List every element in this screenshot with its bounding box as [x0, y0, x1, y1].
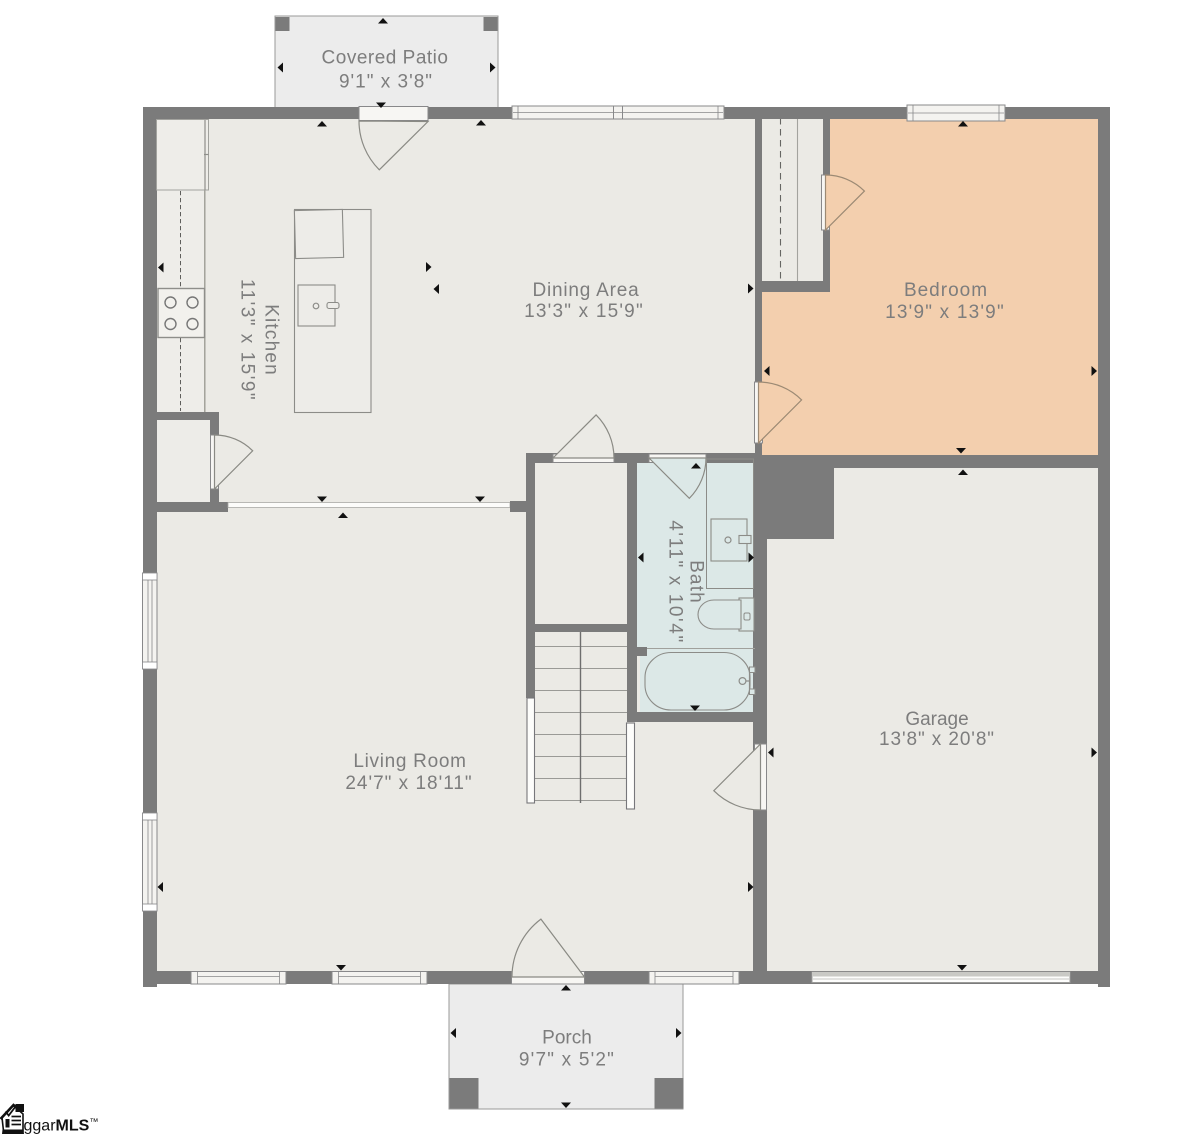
svg-text:Bath: Bath: [686, 560, 707, 604]
svg-text:13'8" x 20'8": 13'8" x 20'8": [879, 729, 995, 750]
svg-text:Bedroom: Bedroom: [904, 280, 988, 301]
svg-text:4'11" x 10'4": 4'11" x 10'4": [665, 520, 686, 644]
svg-text:11'3" x 15'9": 11'3" x 15'9": [237, 279, 258, 401]
svg-text:Garage: Garage: [905, 709, 968, 730]
svg-text:9'7" x 5'2": 9'7" x 5'2": [519, 1050, 615, 1071]
svg-text:ggarMLS™: ggarMLS™: [24, 1117, 99, 1135]
svg-text:Covered Patio: Covered Patio: [322, 48, 449, 69]
svg-text:Kitchen: Kitchen: [261, 304, 282, 376]
svg-text:Dining Area: Dining Area: [532, 280, 639, 301]
svg-text:13'9" x 13'9": 13'9" x 13'9": [885, 302, 1005, 323]
svg-text:Porch: Porch: [542, 1028, 592, 1049]
svg-text:13'3" x 15'9": 13'3" x 15'9": [524, 301, 644, 322]
svg-text:Living Room: Living Room: [353, 751, 466, 772]
svg-text:9'1" x 3'8": 9'1" x 3'8": [339, 72, 433, 93]
svg-text:24'7" x 18'11": 24'7" x 18'11": [345, 773, 472, 794]
